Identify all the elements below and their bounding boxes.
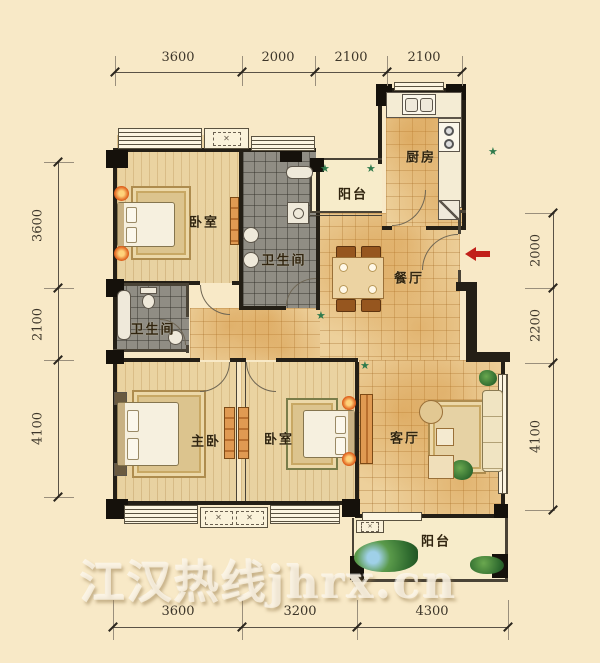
stove [438, 122, 460, 152]
place-setting [368, 285, 377, 294]
ac-unit-icon: ✕ [236, 511, 264, 525]
plant [451, 460, 473, 480]
kitchen-sink [402, 94, 436, 115]
dimension-line-top [115, 72, 462, 73]
nightstand-lamp [114, 246, 129, 261]
wall-bedrooms-top-a [113, 358, 200, 362]
label-living: 客厅 [390, 428, 420, 447]
sofa [482, 390, 503, 472]
dining-chair [361, 299, 381, 312]
burner [444, 139, 454, 149]
toilet-tank [140, 287, 157, 294]
wall-kitchen-right [462, 88, 466, 228]
headboard [118, 403, 125, 465]
dim-right-3: 4100 [529, 414, 544, 460]
window-master [124, 505, 198, 524]
pillow [127, 410, 139, 432]
nightstand-lamp [342, 396, 356, 410]
extension-line [508, 600, 509, 640]
wall-bedrooms-top-c [276, 358, 358, 362]
pillow [126, 207, 137, 223]
plant-star-icon: ★ [366, 163, 376, 174]
label-balcony-top: 阳台 [338, 184, 368, 203]
bathtub [117, 290, 131, 340]
ac-unit-icon: ✕ [205, 511, 233, 525]
wall-bath-mid-top [113, 283, 189, 286]
plant [479, 370, 497, 386]
shower [287, 202, 309, 224]
label-dining: 餐厅 [394, 268, 424, 287]
ac-unit-icon: ✕ [361, 522, 379, 532]
watermark: 江汉热线jhrx.cn [80, 546, 457, 611]
entry-arrow-icon [464, 246, 490, 262]
dim-top-4: 2100 [401, 50, 447, 65]
round-table [419, 400, 443, 424]
tv-cabinet [360, 394, 373, 464]
side-table [428, 455, 454, 479]
wardrobe [224, 407, 235, 459]
dim-left-3: 4100 [31, 406, 46, 452]
partition-master-a [236, 362, 237, 505]
plant-bed [470, 556, 504, 574]
sink-basin [420, 98, 433, 112]
burner [444, 126, 454, 136]
wall-bath-top-bottom [239, 306, 286, 310]
coffee-table [436, 428, 454, 446]
sink-basin [405, 98, 418, 112]
pillow [335, 416, 346, 434]
dining-chair [336, 299, 356, 312]
ac-box-balcony: ✕ [356, 520, 384, 533]
drain [293, 208, 304, 219]
dim-top-2: 2000 [255, 50, 301, 65]
window-bedroom-bottom [270, 505, 340, 524]
label-kitchen: 厨房 [406, 147, 436, 166]
toilet-bowl [142, 294, 155, 309]
pillar [106, 150, 128, 168]
label-master-bedroom: 主卧 [191, 431, 221, 450]
plant-star-icon: ★ [316, 310, 326, 321]
wall-bedrooms-top-b [230, 358, 246, 362]
window-bedroom-top [118, 128, 202, 149]
dim-right-2: 2200 [529, 303, 544, 349]
dim-left-2: 2100 [31, 302, 46, 348]
corner-cabinet [438, 200, 460, 220]
nightstand-lamp [114, 186, 129, 201]
wall-bath-top-left [239, 150, 243, 310]
sink [243, 227, 259, 243]
pillar [342, 499, 360, 517]
pillow [126, 227, 137, 243]
dim-left-1: 3600 [31, 203, 46, 249]
label-bedroom-top: 卧室 [189, 212, 219, 231]
balcony-top-slider-b [310, 215, 382, 216]
bed-master [117, 402, 179, 466]
ac-unit-icon: ✕ [213, 132, 241, 146]
dining-table [332, 257, 384, 299]
dim-right-1: 2000 [529, 228, 544, 274]
balcony-top-slider-a [310, 211, 382, 213]
label-bathroom-top: 卫生间 [261, 250, 306, 269]
bathtub [286, 166, 313, 179]
wall-entry-vertical [466, 282, 477, 362]
dimension-line-bottom [113, 627, 508, 628]
plant-star-icon: ★ [360, 360, 370, 371]
place-setting [368, 263, 377, 272]
floor-corridor [190, 308, 320, 360]
ac-platform-bottom: ✕ ✕ [200, 507, 268, 528]
floor-plan: ✕ ✕ ✕ ✕ [0, 0, 600, 663]
dimension-line-left [58, 162, 59, 497]
wall-kitchen-bottom-a [382, 226, 392, 230]
headboard [348, 411, 354, 457]
dim-top-3: 2100 [328, 50, 374, 65]
wall-entry-bottom [466, 352, 510, 362]
window-bath-top [251, 136, 315, 151]
plant-star-icon: ★ [320, 163, 330, 174]
wall-bath-mid-bottom [113, 349, 189, 352]
wall-bedroom-living [355, 362, 359, 505]
place-setting [339, 285, 348, 294]
ac-platform-top: ✕ [204, 128, 249, 149]
dim-top-1: 3600 [155, 50, 201, 65]
wall-bath-top-right [316, 158, 320, 310]
wardrobe [230, 197, 239, 245]
wall-bath-mid-right-a [186, 283, 189, 317]
pillar [106, 350, 124, 364]
wardrobe [238, 407, 249, 459]
headboard [118, 203, 124, 246]
label-bathroom-mid: 卫生间 [130, 319, 175, 338]
pillar [494, 504, 508, 518]
window-kitchen [394, 82, 444, 91]
bed [117, 202, 175, 247]
bed [303, 410, 355, 458]
nightstand-lamp [342, 452, 356, 466]
sink [243, 252, 259, 268]
pillow [127, 438, 139, 460]
label-bedroom-bottom: 卧室 [264, 429, 294, 448]
place-setting [339, 263, 348, 272]
plant-star-icon: ★ [488, 146, 498, 157]
